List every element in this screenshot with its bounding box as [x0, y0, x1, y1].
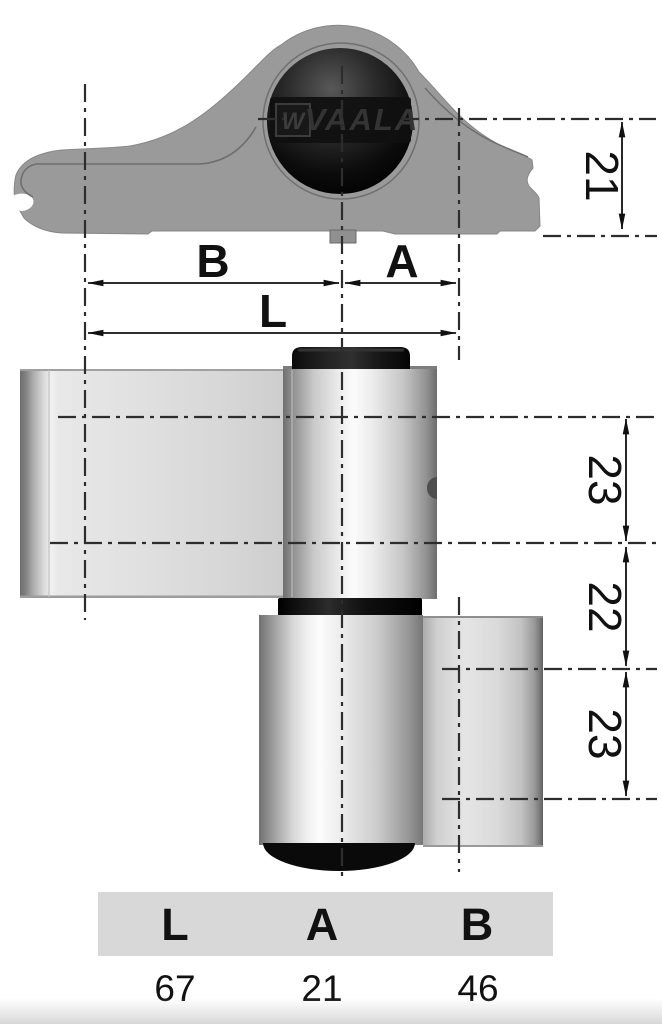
lower-right-leaf-top-edge [423, 616, 543, 618]
lower-right-leaf [423, 616, 543, 847]
upper-leaf [20, 369, 292, 598]
pin-top-cap-highlight [298, 349, 404, 352]
upper-knuckle [283, 366, 437, 599]
hinge-drawing-page: W VAALA [0, 0, 662, 1024]
technical-drawing-canvas: W VAALA [0, 0, 662, 1024]
upper-leaf-bottom-edge [20, 596, 292, 599]
upper-leaf-top-edge [20, 369, 292, 371]
brand-logo: W VAALA [270, 97, 419, 143]
lower-right-leaf-bottom-edge [423, 845, 543, 847]
bottom-fade [0, 998, 662, 1024]
dim-label-23-bottom: 23 [579, 708, 631, 759]
bearing-ring [278, 598, 422, 616]
dim-label-23-top: 23 [579, 454, 631, 505]
dim-label-B: B [196, 235, 229, 287]
top-profile-view: W VAALA [12, 25, 540, 243]
dim-label-21: 21 [576, 150, 628, 201]
dim-label-L: L [259, 285, 287, 337]
dim-label-22: 22 [579, 581, 631, 632]
logo-box-letter: W [282, 108, 307, 135]
table-header-A: A [306, 899, 339, 950]
table-header-B: B [461, 899, 494, 950]
front-view [20, 347, 543, 871]
spec-table: L A B 67 21 46 [98, 892, 553, 1009]
dim-label-A: A [385, 235, 418, 287]
table-header-L: L [161, 899, 189, 950]
pin-bottom-dome [263, 843, 415, 871]
